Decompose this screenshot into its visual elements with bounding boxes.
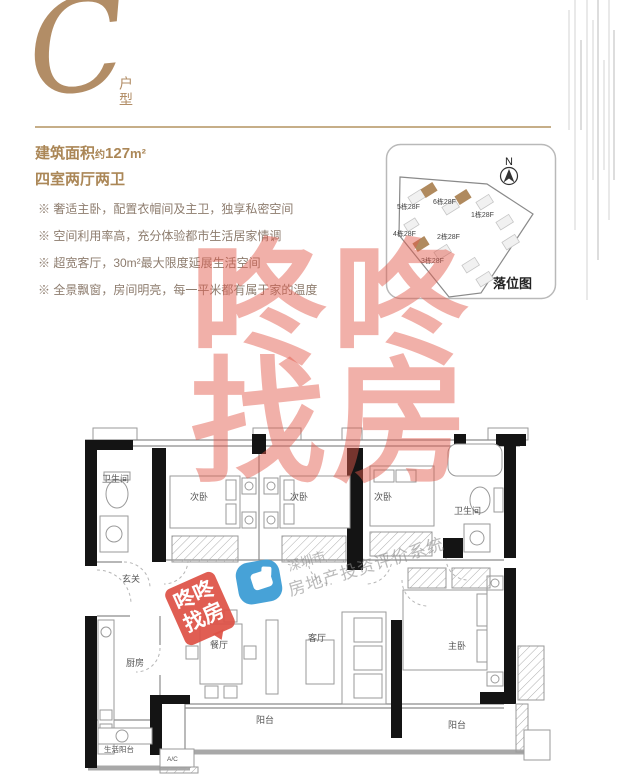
room-label-living: 客厅 [308,632,326,643]
room-label-bed3: 次卧 [374,491,392,502]
building-label: 2栋28F [437,232,460,241]
area-line: 建筑面积约127m² [35,142,146,168]
site-map-title: 落位图 [493,276,532,291]
building-label: 5栋28F [397,202,420,211]
feature-list: ※ 奢适主卧，配置衣帽间及主卫，独享私密空间 ※ 空间利用率高，充分体验都市生活… [38,196,317,304]
area-label: 建筑面积 [35,145,95,162]
building-label: 3栋28F [421,256,444,265]
room-label-bath1: 卫生间 [102,473,129,484]
feature-item: ※ 超宽客厅，30m²最大限度延展生活空间 [38,250,317,277]
unit-summary: 建筑面积约127m² 四室两厅两卫 [35,142,146,192]
header-divider [35,126,551,128]
room-label-bath2: 卫生间 [454,505,481,516]
area-approx: 约 [95,150,105,161]
site-location-map: N 5栋28F 6栋28F 1栋28F 4栋2 [385,143,557,300]
building-label: 6栋28F [433,197,456,206]
floor-plan: 卫生间 次卧 次卧 次卧 卫生间 玄关 厨房 餐厅 客厅 主卧 阳台 阳台 生活… [60,420,619,780]
building-label: 1栋28F [471,210,494,219]
room-label-master: 主卧 [448,640,466,651]
camera-glyph [250,569,274,591]
room-label-foyer: 玄关 [122,573,140,584]
room-label-bed1: 次卧 [190,491,208,502]
svg-text:N: N [505,156,513,168]
room-label-balcony-main: 阳台 [256,714,274,725]
room-label-balcony-master: 阳台 [448,719,466,730]
room-label-ac: A/C [167,756,178,763]
feature-item: ※ 奢适主卧，配置衣帽间及主卫，独享私密空间 [38,196,317,223]
feature-item: ※ 空间利用率高，充分体验都市生活居家情调 [38,223,317,250]
building-label: 4栋28F [393,229,416,238]
unit-type-label: 户型 [117,76,134,108]
room-label-service-balcony: 生活阳台 [104,744,134,754]
area-value: 127 [105,145,130,162]
room-label-bed2: 次卧 [290,491,308,502]
feature-item: ※ 全景飘窗，房间明亮，每一平米都有属于家的温度 [38,277,317,304]
layout-line: 四室两厅两卫 [35,168,146,192]
area-unit: m² [130,146,146,161]
room-label-kitchen: 厨房 [126,657,144,668]
